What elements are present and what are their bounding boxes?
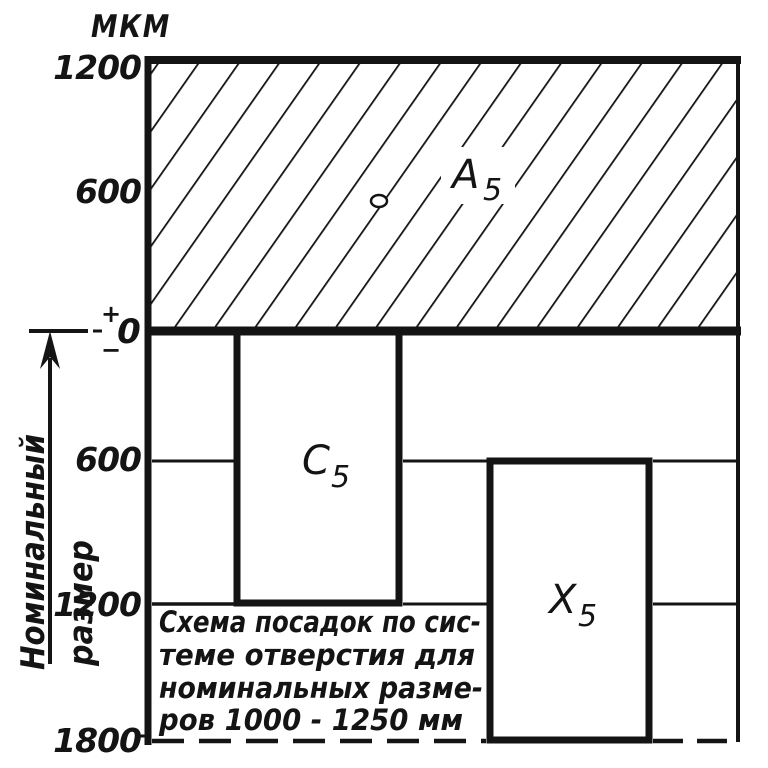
unit-label: МКМ <box>91 9 171 45</box>
figure-caption: Схема посадок по сис- теме отверстия для… <box>158 605 483 737</box>
tick-1800-below: 1800 <box>53 721 141 760</box>
zero-minus-sign: − <box>101 336 121 364</box>
tolerance-fits-diagram: А 5 С 5 Х 5 МКМ 1200 600 + 0 − 600 1200 … <box>0 0 768 768</box>
zone-a5-subscript: 5 <box>483 173 502 208</box>
zone-c5-subscript: 5 <box>331 460 350 495</box>
tick-600-below: 600 <box>75 440 141 479</box>
zone-x5-label: Х <box>547 577 578 623</box>
caption-line-4: ров 1000 - 1250 мм <box>158 703 463 737</box>
zone-c5-label: С <box>302 438 330 484</box>
zone-a5-label: А <box>449 152 479 198</box>
caption-line-3: номинальных разме- <box>159 671 483 705</box>
tick-1200-above: 1200 <box>53 48 141 87</box>
figure-page: А 5 С 5 Х 5 МКМ 1200 600 + 0 − 600 1200 … <box>0 0 768 768</box>
zone-x5-subscript: 5 <box>578 599 597 634</box>
scan-blemish <box>371 195 387 207</box>
nominal-size-label-word1: Номинальный <box>13 434 52 670</box>
tick-600-above: 600 <box>75 172 141 211</box>
caption-line-1: Схема посадок по сис- <box>159 605 481 639</box>
nominal-size-label-word2: размер <box>61 540 100 667</box>
caption-line-2: теме отверстия для <box>159 638 475 672</box>
